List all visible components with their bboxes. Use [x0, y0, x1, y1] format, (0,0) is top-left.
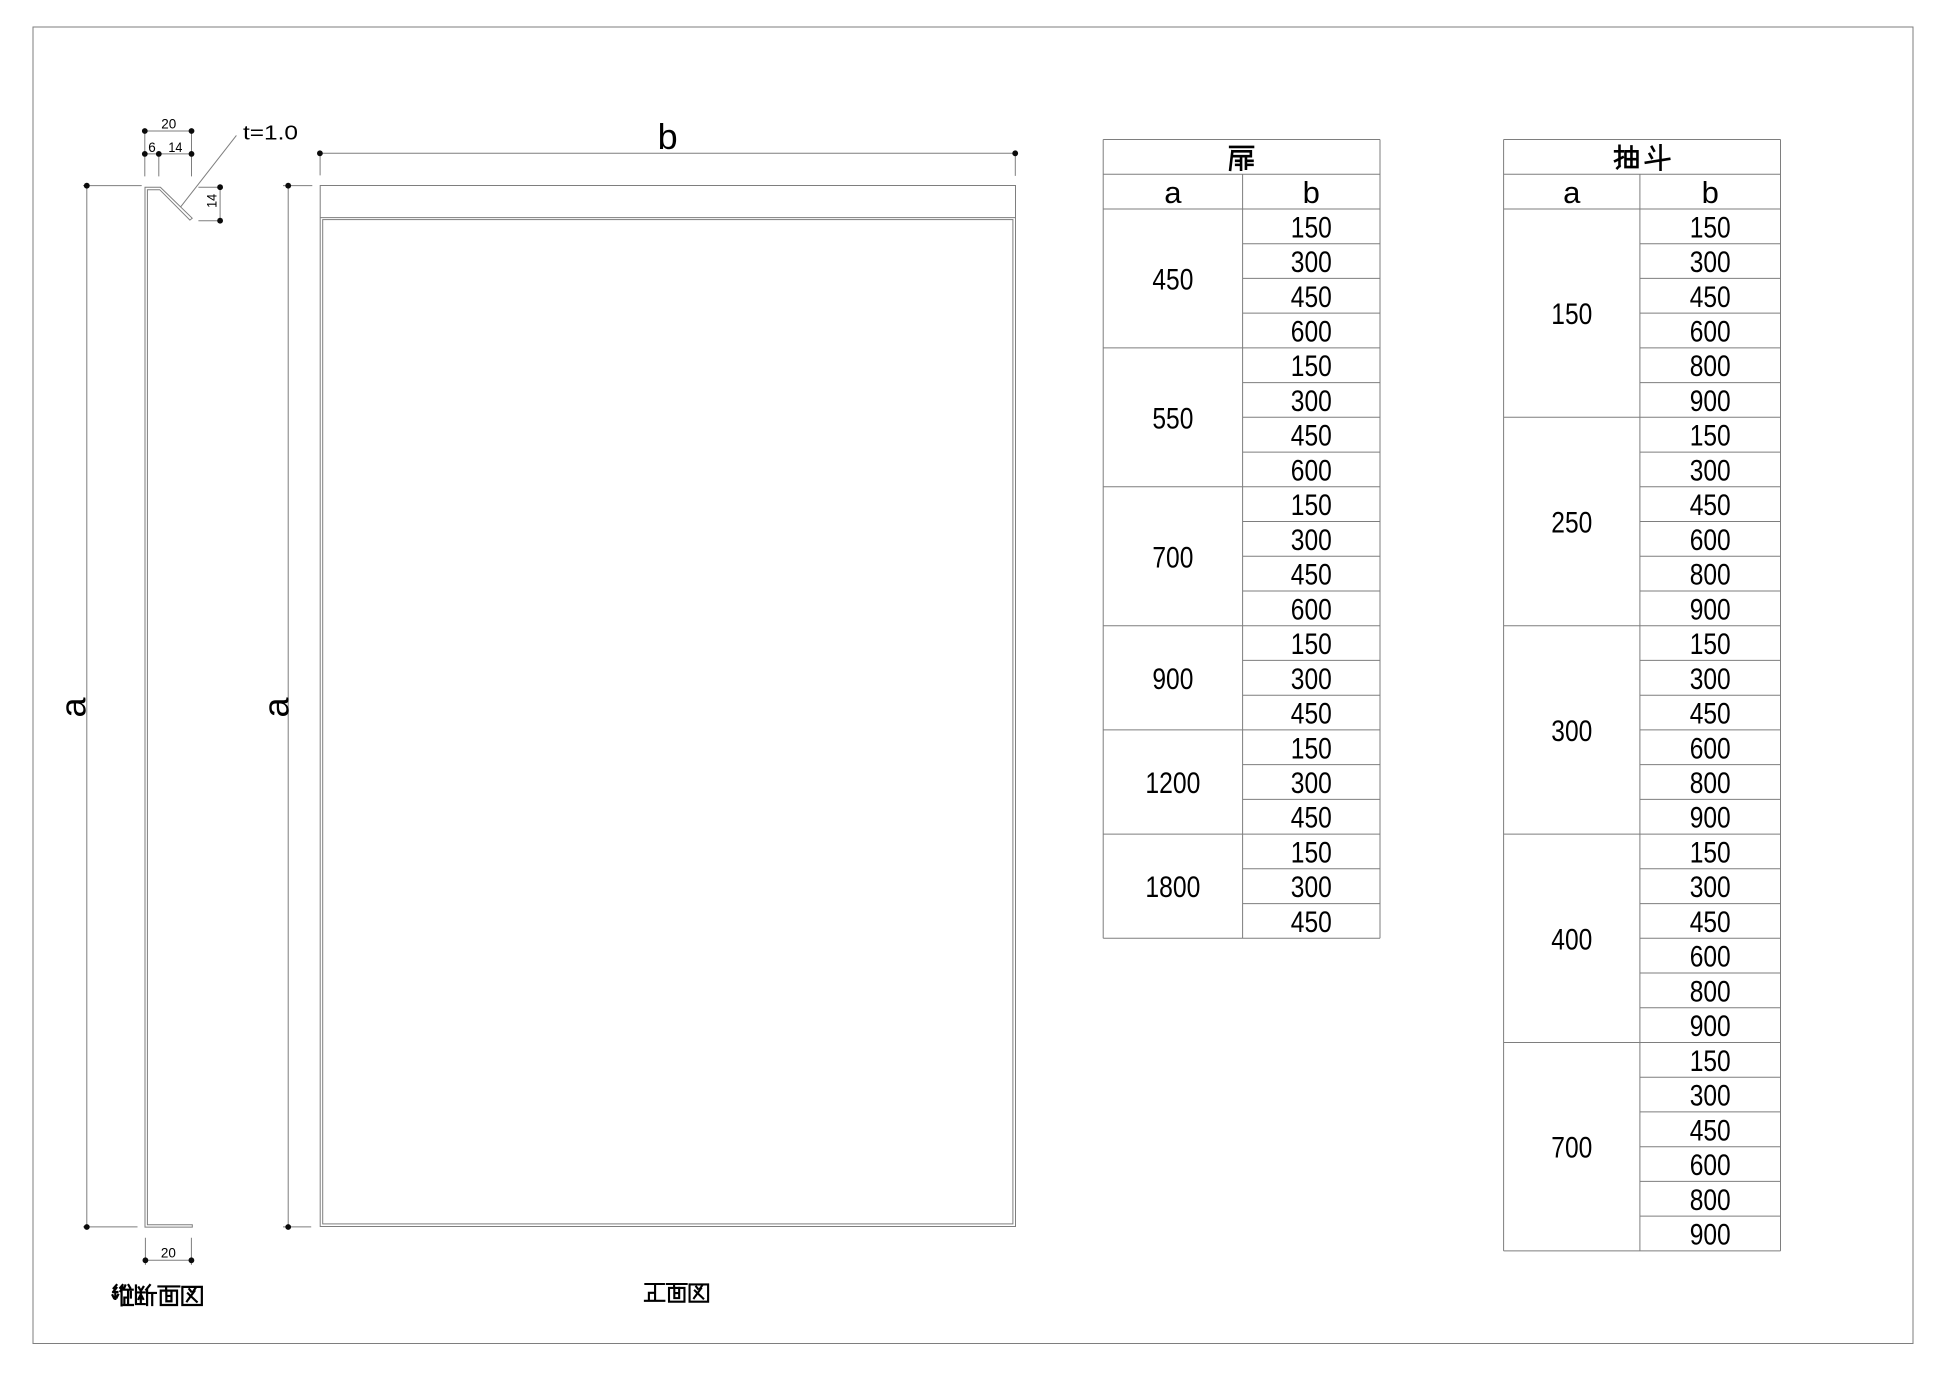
svg-text:900: 900: [1690, 1219, 1731, 1252]
svg-text:20: 20: [161, 1246, 176, 1261]
svg-text:300: 300: [1690, 454, 1731, 487]
svg-text:150: 150: [1291, 628, 1332, 661]
svg-text:300: 300: [1690, 663, 1731, 696]
svg-text:300: 300: [1690, 871, 1731, 904]
svg-text:800: 800: [1690, 559, 1731, 592]
svg-text:600: 600: [1690, 524, 1731, 557]
svg-text:450: 450: [1291, 698, 1332, 731]
svg-text:150: 150: [1690, 420, 1731, 453]
svg-text:900: 900: [1152, 663, 1193, 696]
svg-text:800: 800: [1690, 767, 1731, 800]
svg-text:150: 150: [1291, 350, 1332, 383]
svg-text:300: 300: [1551, 715, 1592, 748]
svg-text:a: a: [1164, 175, 1182, 210]
svg-text:14: 14: [205, 193, 220, 207]
svg-text:600: 600: [1690, 941, 1731, 974]
svg-text:900: 900: [1690, 385, 1731, 418]
svg-text:150: 150: [1291, 489, 1332, 522]
svg-text:450: 450: [1291, 802, 1332, 835]
svg-text:150: 150: [1291, 211, 1332, 244]
svg-text:800: 800: [1690, 1184, 1731, 1217]
svg-text:150: 150: [1690, 1045, 1731, 1078]
svg-text:450: 450: [1690, 698, 1731, 731]
svg-text:450: 450: [1291, 420, 1332, 453]
svg-text:250: 250: [1551, 507, 1592, 540]
svg-text:b: b: [1702, 175, 1719, 210]
svg-text:900: 900: [1690, 593, 1731, 626]
svg-text:300: 300: [1291, 663, 1332, 696]
svg-text:600: 600: [1690, 732, 1731, 765]
svg-text:450: 450: [1690, 489, 1731, 522]
svg-text:400: 400: [1551, 923, 1592, 956]
svg-text:1800: 1800: [1145, 871, 1200, 904]
svg-text:600: 600: [1690, 1149, 1731, 1182]
svg-text:a: a: [256, 697, 297, 718]
svg-text:150: 150: [1551, 298, 1592, 331]
svg-text:450: 450: [1291, 906, 1332, 939]
svg-text:450: 450: [1291, 281, 1332, 314]
svg-text:a: a: [1563, 175, 1581, 210]
svg-text:b: b: [1303, 175, 1320, 210]
svg-text:150: 150: [1690, 211, 1731, 244]
svg-text:6: 6: [148, 140, 156, 155]
svg-text:450: 450: [1291, 559, 1332, 592]
svg-text:450: 450: [1690, 281, 1731, 314]
svg-text:800: 800: [1690, 350, 1731, 383]
svg-text:600: 600: [1690, 316, 1731, 349]
svg-text:150: 150: [1291, 732, 1332, 765]
svg-text:600: 600: [1291, 454, 1332, 487]
svg-text:600: 600: [1291, 316, 1332, 349]
svg-text:300: 300: [1291, 385, 1332, 418]
svg-text:300: 300: [1291, 767, 1332, 800]
svg-text:150: 150: [1690, 628, 1731, 661]
svg-text:900: 900: [1690, 802, 1731, 835]
svg-text:300: 300: [1291, 524, 1332, 557]
svg-text:700: 700: [1152, 541, 1193, 574]
svg-text:t=1.0: t=1.0: [243, 123, 298, 145]
svg-text:150: 150: [1690, 837, 1731, 870]
svg-text:b: b: [658, 116, 678, 157]
svg-text:700: 700: [1551, 1132, 1592, 1165]
svg-text:300: 300: [1291, 246, 1332, 279]
svg-text:800: 800: [1690, 975, 1731, 1008]
svg-text:a: a: [53, 697, 94, 718]
svg-text:300: 300: [1690, 246, 1731, 279]
svg-text:150: 150: [1291, 837, 1332, 870]
svg-text:450: 450: [1690, 1114, 1731, 1147]
svg-text:300: 300: [1291, 871, 1332, 904]
svg-text:20: 20: [161, 116, 176, 131]
svg-text:900: 900: [1690, 1010, 1731, 1043]
svg-text:600: 600: [1291, 593, 1332, 626]
svg-text:300: 300: [1690, 1080, 1731, 1113]
svg-text:1200: 1200: [1145, 767, 1200, 800]
svg-text:550: 550: [1152, 402, 1193, 435]
svg-text:450: 450: [1152, 263, 1193, 296]
svg-text:14: 14: [168, 140, 182, 155]
svg-text:450: 450: [1690, 906, 1731, 939]
